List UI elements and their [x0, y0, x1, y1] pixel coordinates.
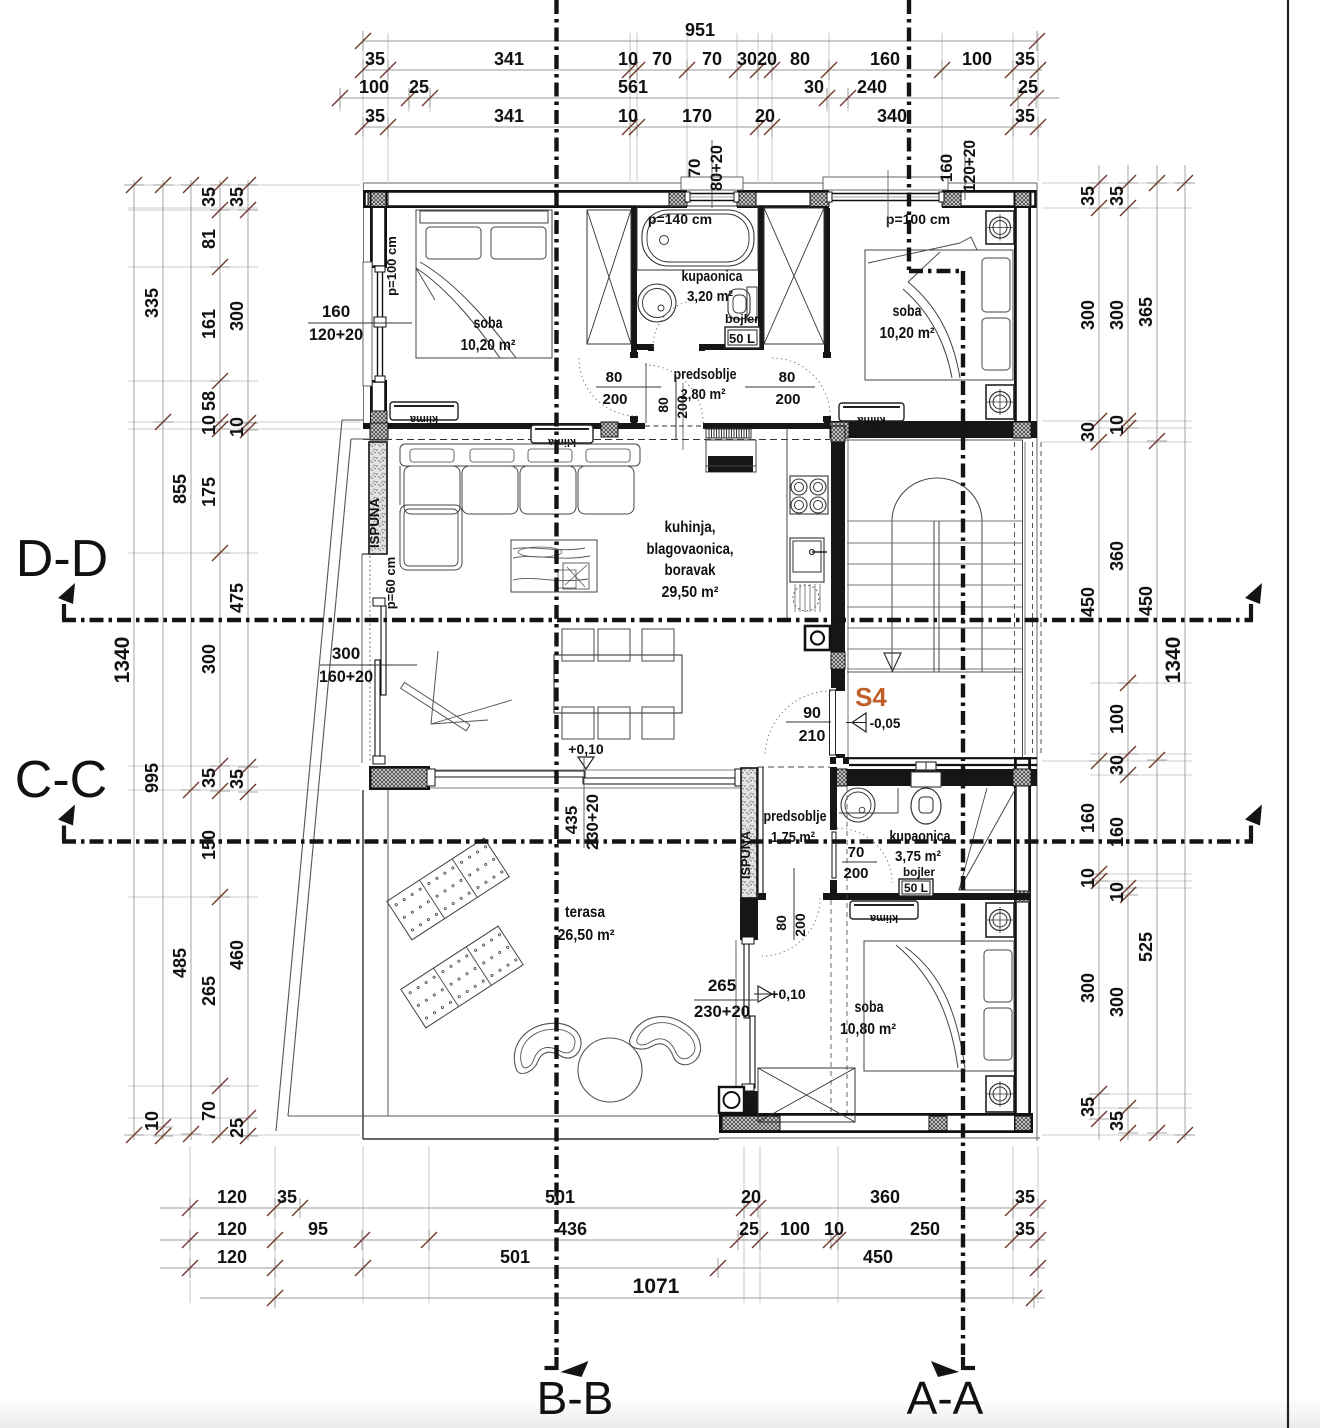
svg-text:995: 995: [142, 763, 162, 793]
svg-text:340: 340: [877, 106, 907, 126]
svg-text:bojler: bojler: [725, 312, 759, 326]
svg-text:10: 10: [227, 417, 247, 437]
svg-text:25: 25: [1018, 77, 1038, 97]
svg-text:450: 450: [1136, 586, 1156, 616]
svg-text:35: 35: [227, 187, 247, 207]
svg-text:450: 450: [863, 1247, 893, 1267]
svg-text:360: 360: [1107, 541, 1127, 571]
svg-text:35: 35: [1078, 1097, 1098, 1117]
svg-text:soba: soba: [474, 315, 503, 332]
svg-text:265: 265: [708, 976, 736, 995]
svg-text:soba: soba: [893, 303, 922, 320]
svg-text:29,50 m²: 29,50 m²: [662, 584, 719, 601]
svg-text:20: 20: [741, 1187, 761, 1207]
svg-text:35: 35: [199, 768, 219, 788]
svg-text:35: 35: [199, 187, 219, 207]
svg-text:p=140 cm: p=140 cm: [648, 211, 712, 227]
svg-text:300: 300: [1107, 300, 1127, 330]
svg-text:335: 335: [142, 288, 162, 318]
svg-text:200: 200: [775, 391, 800, 408]
svg-text:200: 200: [602, 391, 627, 408]
svg-text:161: 161: [199, 309, 219, 339]
svg-text:300: 300: [1078, 300, 1098, 330]
svg-text:35: 35: [365, 49, 385, 69]
svg-text:300: 300: [199, 644, 219, 674]
svg-text:D-D: D-D: [16, 530, 108, 588]
svg-text:150: 150: [199, 830, 219, 860]
svg-text:25: 25: [227, 1118, 247, 1138]
svg-text:10: 10: [1107, 415, 1127, 435]
svg-text:100: 100: [1107, 704, 1127, 734]
svg-text:-0,05: -0,05: [870, 716, 901, 731]
svg-text:10: 10: [618, 106, 638, 126]
svg-text:120: 120: [217, 1219, 247, 1239]
svg-text:70: 70: [652, 49, 672, 69]
svg-text:265: 265: [199, 976, 219, 1006]
svg-text:20: 20: [755, 106, 775, 126]
svg-text:35: 35: [227, 769, 247, 789]
svg-text:80: 80: [655, 397, 671, 413]
svg-text:kuhinja,: kuhinja,: [665, 519, 716, 536]
svg-text:35: 35: [1015, 49, 1035, 69]
svg-text:95: 95: [308, 1219, 328, 1239]
svg-text:predsoblje: predsoblje: [764, 808, 827, 825]
svg-text:100: 100: [359, 77, 389, 97]
svg-text:35: 35: [1015, 1219, 1035, 1239]
svg-text:160+20: 160+20: [319, 667, 373, 686]
svg-text:klima: klima: [857, 414, 886, 426]
svg-text:360: 360: [870, 1187, 900, 1207]
svg-text:120+20: 120+20: [309, 325, 363, 344]
svg-text:200: 200: [674, 395, 690, 419]
svg-text:475: 475: [227, 583, 247, 613]
svg-text:250: 250: [910, 1219, 940, 1239]
svg-text:35: 35: [365, 106, 385, 126]
svg-text:80: 80: [790, 49, 810, 69]
svg-text:200: 200: [843, 865, 868, 882]
svg-text:boravak: boravak: [665, 562, 716, 579]
svg-text:501: 501: [500, 1247, 530, 1267]
svg-text:20: 20: [757, 49, 777, 69]
svg-text:160: 160: [937, 154, 956, 182]
svg-text:525: 525: [1136, 932, 1156, 962]
svg-text:160: 160: [322, 302, 350, 321]
svg-text:35: 35: [1107, 186, 1127, 206]
svg-text:10: 10: [1078, 868, 1098, 888]
svg-text:26,50 m²: 26,50 m²: [558, 927, 615, 944]
svg-text:terasa: terasa: [565, 904, 605, 921]
svg-text:70: 70: [848, 844, 865, 861]
svg-text:80+20: 80+20: [707, 145, 726, 191]
svg-text:S4: S4: [855, 682, 887, 712]
svg-text:klima: klima: [409, 413, 438, 425]
svg-text:klima: klima: [547, 436, 576, 448]
svg-text:A-A: A-A: [907, 1372, 984, 1424]
svg-text:70: 70: [702, 49, 722, 69]
svg-text:10,80 m²: 10,80 m²: [840, 1021, 896, 1038]
svg-text:predsoblje: predsoblje: [674, 366, 737, 383]
svg-text:p=60 cm: p=60 cm: [383, 557, 398, 609]
svg-text:+0,10: +0,10: [568, 741, 604, 757]
svg-text:ISPUNA: ISPUNA: [739, 831, 753, 879]
svg-text:25: 25: [739, 1219, 759, 1239]
svg-text:10: 10: [824, 1219, 844, 1239]
svg-text:1071: 1071: [633, 1275, 680, 1298]
svg-text:klima: klima: [869, 912, 898, 924]
svg-text:200: 200: [792, 913, 808, 937]
svg-text:soba: soba: [855, 999, 884, 1016]
svg-text:25: 25: [409, 77, 429, 97]
svg-text:35: 35: [277, 1187, 297, 1207]
svg-text:1340: 1340: [111, 637, 134, 684]
svg-text:50 L: 50 L: [729, 331, 755, 346]
svg-text:120: 120: [217, 1187, 247, 1207]
svg-text:501: 501: [545, 1187, 575, 1207]
svg-text:80: 80: [606, 369, 623, 386]
svg-text:35: 35: [1015, 1187, 1035, 1207]
svg-text:30: 30: [737, 49, 757, 69]
svg-text:341: 341: [494, 49, 524, 69]
svg-text:175: 175: [199, 477, 219, 507]
svg-text:30: 30: [804, 77, 824, 97]
svg-text:450: 450: [1078, 587, 1098, 617]
svg-text:30: 30: [1107, 755, 1127, 775]
svg-text:p=100 cm: p=100 cm: [384, 236, 399, 296]
svg-text:70: 70: [199, 1101, 219, 1121]
svg-text:100: 100: [780, 1219, 810, 1239]
svg-text:170: 170: [682, 106, 712, 126]
svg-text:58: 58: [199, 391, 219, 411]
svg-text:bojler: bojler: [903, 865, 935, 879]
svg-text:120+20: 120+20: [960, 140, 979, 192]
svg-text:blagovaonica,: blagovaonica,: [647, 541, 734, 558]
svg-text:80: 80: [773, 915, 789, 931]
svg-text:50 L: 50 L: [904, 881, 928, 895]
svg-text:90: 90: [803, 705, 821, 722]
svg-text:300: 300: [332, 644, 360, 663]
svg-text:300: 300: [227, 301, 247, 331]
svg-text:300: 300: [1078, 973, 1098, 1003]
svg-text:485: 485: [170, 948, 190, 978]
svg-text:951: 951: [685, 20, 715, 40]
svg-text:100: 100: [962, 49, 992, 69]
svg-text:1340: 1340: [1162, 637, 1185, 684]
svg-text:70: 70: [685, 159, 704, 178]
svg-text:436: 436: [557, 1219, 587, 1239]
svg-text:230+20: 230+20: [694, 1002, 750, 1021]
svg-text:35: 35: [1078, 186, 1098, 206]
svg-text:+0,10: +0,10: [770, 986, 806, 1002]
svg-text:10,20 m²: 10,20 m²: [880, 325, 935, 342]
svg-text:120: 120: [217, 1247, 247, 1267]
svg-text:365: 365: [1136, 297, 1156, 327]
svg-text:300: 300: [1107, 987, 1127, 1017]
svg-text:10,20 m²: 10,20 m²: [461, 337, 516, 354]
svg-text:240: 240: [857, 77, 887, 97]
svg-text:3,20 m²: 3,20 m²: [687, 288, 733, 305]
svg-text:160: 160: [1078, 803, 1098, 833]
svg-text:10: 10: [1107, 882, 1127, 902]
svg-text:ISPUNA: ISPUNA: [368, 498, 382, 548]
svg-text:10: 10: [618, 49, 638, 69]
svg-text:210: 210: [799, 728, 826, 745]
svg-text:10: 10: [142, 1111, 162, 1131]
svg-text:B-B: B-B: [537, 1372, 614, 1424]
svg-text:C-C: C-C: [15, 751, 107, 809]
svg-text:341: 341: [494, 106, 524, 126]
svg-text:30: 30: [1078, 422, 1098, 442]
svg-text:435: 435: [562, 806, 581, 834]
svg-text:p=100 cm: p=100 cm: [886, 211, 950, 227]
svg-text:35: 35: [1107, 1111, 1127, 1131]
svg-text:160: 160: [870, 49, 900, 69]
svg-text:561: 561: [618, 77, 648, 97]
svg-text:kupaonica: kupaonica: [682, 268, 744, 285]
svg-text:460: 460: [227, 940, 247, 970]
svg-text:10: 10: [199, 415, 219, 435]
svg-text:80: 80: [779, 369, 796, 386]
svg-text:3,75 m²: 3,75 m²: [895, 848, 941, 865]
svg-text:35: 35: [1015, 106, 1035, 126]
svg-text:81: 81: [199, 229, 219, 249]
svg-text:855: 855: [170, 474, 190, 504]
